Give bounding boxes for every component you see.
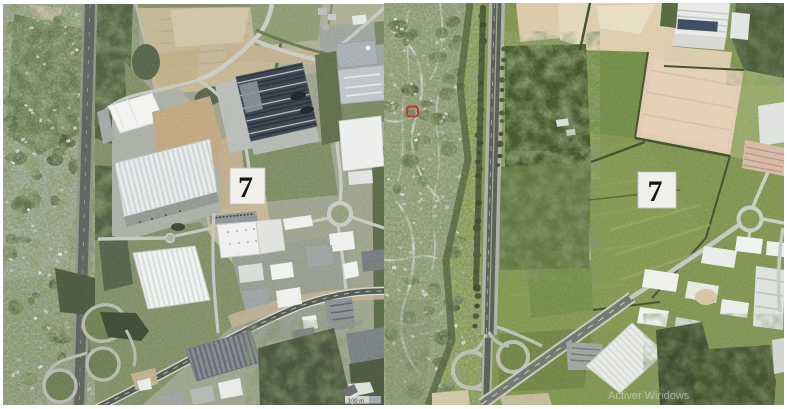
svg-text:100 m: 100 m (348, 398, 364, 404)
svg-text:7: 7 (648, 175, 663, 208)
svg-text:Activer Windows: Activer Windows (608, 390, 690, 402)
svg-text:7: 7 (238, 171, 253, 204)
